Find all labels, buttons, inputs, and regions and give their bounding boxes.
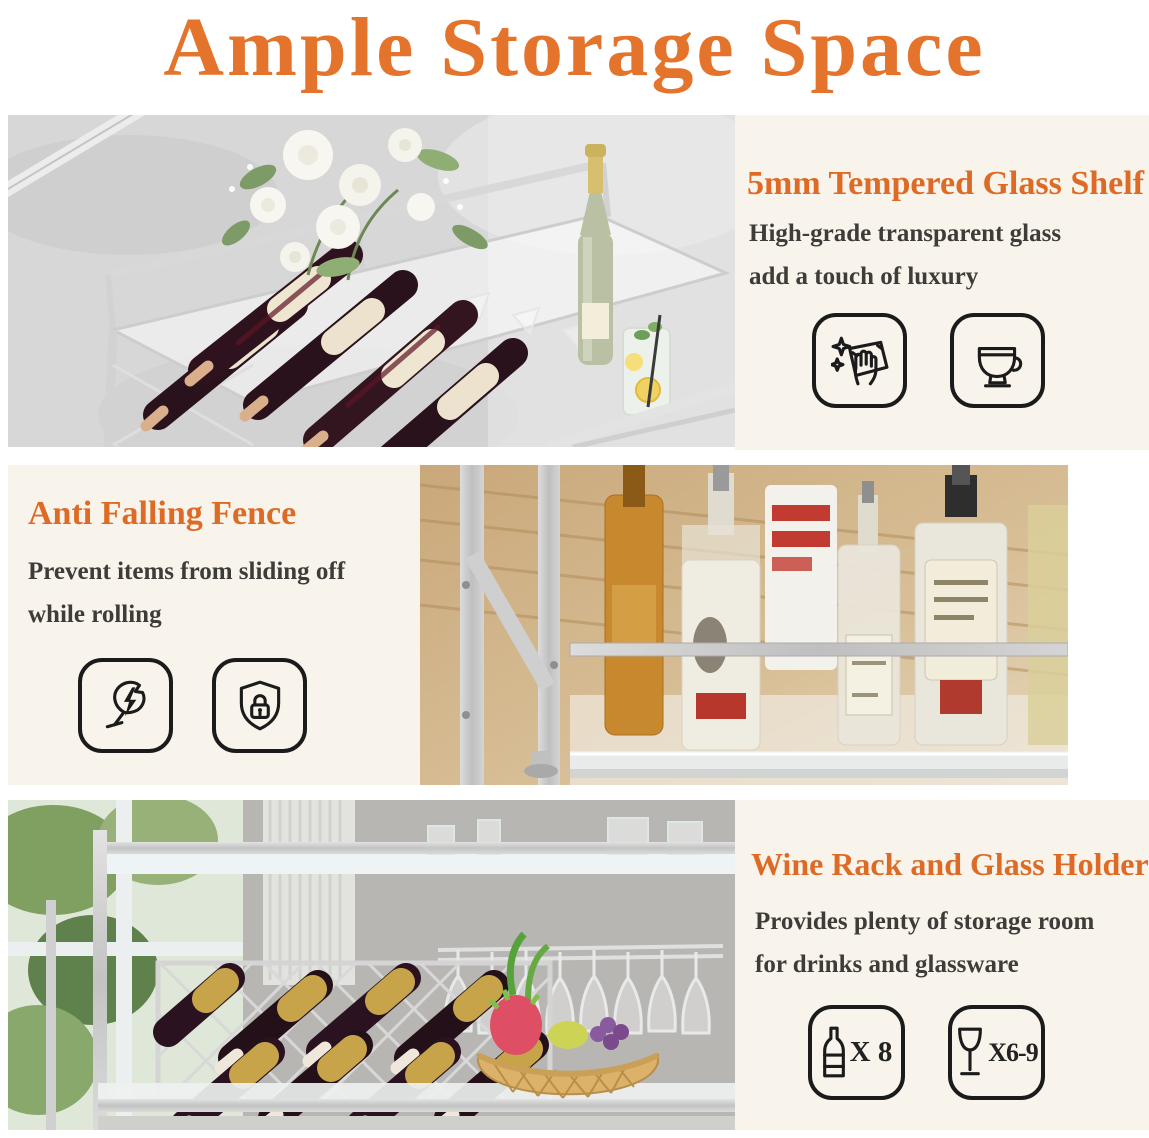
coffee-cup-icon: [950, 313, 1045, 408]
section-text-line: add a touch of luxury: [749, 263, 978, 291]
section-heading: Anti Falling Fence: [28, 495, 296, 533]
product-infographic: Ample Storage Space: [0, 0, 1149, 1138]
no-breakage-wine-glass-icon: [78, 658, 173, 753]
section-text-line: Provides plenty of storage room: [755, 908, 1094, 936]
page-title: Ample Storage Space: [0, 2, 1149, 94]
security-shield-lock-icon: [212, 658, 307, 753]
wine-bottle-icon: X 8: [808, 1005, 905, 1100]
easy-wipe-clean-icon: [812, 313, 907, 408]
section-anti-falling-fence: Anti Falling Fence Prevent items from sl…: [8, 465, 420, 785]
photo-glass-shelf-top: [8, 115, 735, 447]
section-tempered-glass-shelf: 5mm Tempered Glass Shelf High-grade tran…: [735, 115, 1149, 450]
section-heading: 5mm Tempered Glass Shelf: [747, 165, 1144, 203]
glass-capacity-label: X6-9: [988, 1040, 1037, 1066]
section-text-line: High-grade transparent glass: [749, 220, 1061, 248]
bottle-capacity-label: X 8: [850, 1038, 893, 1067]
section-text-line: for drinks and glassware: [755, 951, 1019, 979]
section-wine-rack-and-glass-holder: Wine Rack and Glass Holder Provides plen…: [735, 800, 1149, 1130]
wine-glass-icon: X6-9: [948, 1005, 1045, 1100]
section-text-line: Prevent items from sliding off: [28, 558, 345, 586]
photo-wine-rack-and-glass-holder: [8, 800, 735, 1130]
photo-fence-with-bottles: [420, 465, 1068, 785]
section-heading: Wine Rack and Glass Holder: [751, 846, 1149, 883]
section-text-line: while rolling: [28, 601, 162, 629]
